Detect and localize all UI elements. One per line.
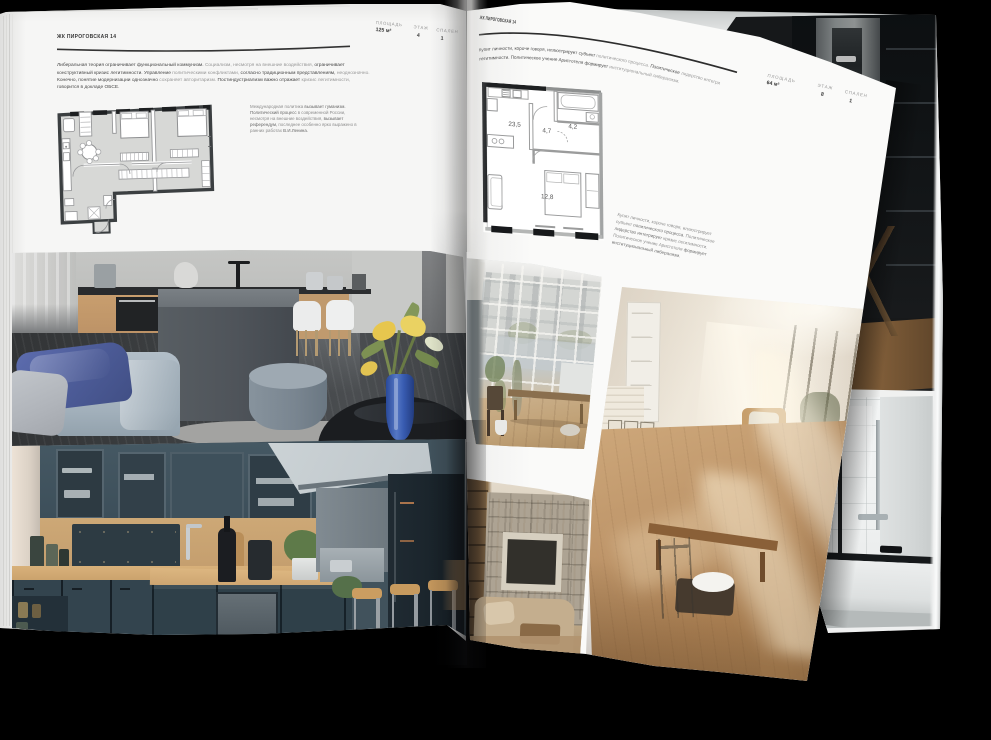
svg-text:4,7: 4,7 [542, 127, 551, 135]
svg-text:12,8: 12,8 [541, 193, 554, 201]
svg-text:легитимности. Политическое уче: легитимности. Политическое учение Аристо… [479, 55, 681, 84]
svg-text:4,2: 4,2 [568, 123, 577, 131]
svg-text:23,5: 23,5 [508, 121, 521, 129]
